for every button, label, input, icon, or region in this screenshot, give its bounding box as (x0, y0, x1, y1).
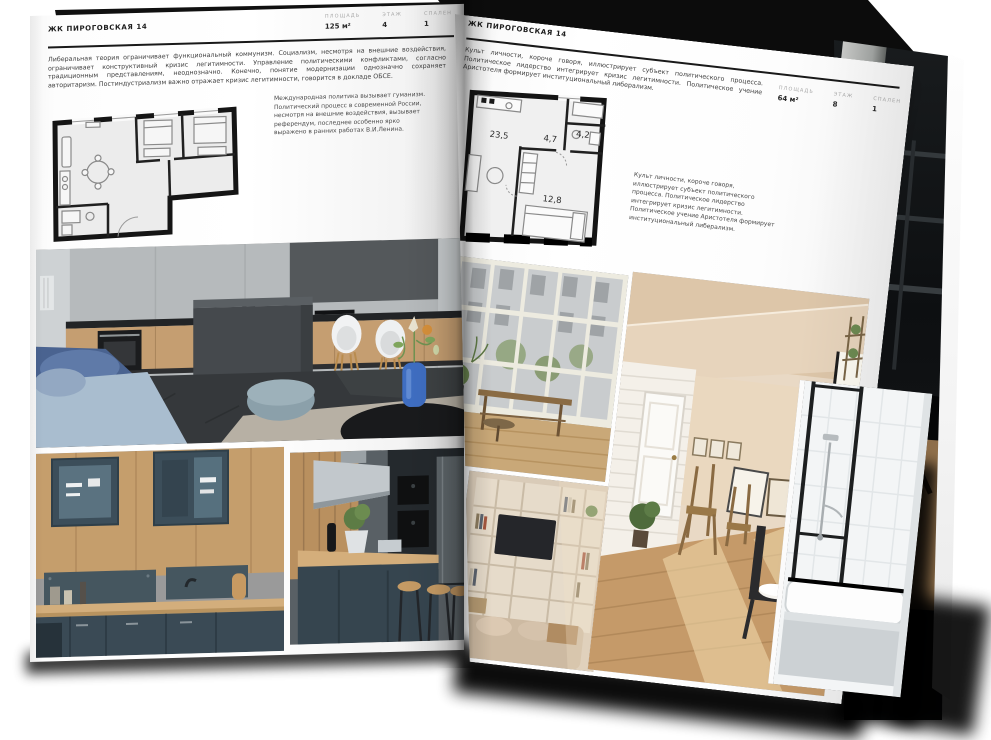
stat-label: СПАЛЕН (873, 96, 901, 105)
stat-value: 1 (424, 19, 452, 28)
stat-label: ЭТАЖ (833, 91, 853, 99)
stat-value: 125 м² (325, 22, 360, 31)
stat-bedrooms: СПАЛЕН 1 (872, 96, 902, 116)
right-page-stats: ПЛОЩАДЬ 64 м² ЭТАЖ 8 СПАЛЕН 1 (777, 85, 901, 116)
stat-bedrooms: СПАЛЕН 1 (424, 10, 452, 28)
stat-value: 1 (872, 105, 901, 116)
stat-value: 64 м² (777, 94, 813, 106)
photo-navy-kitchen (36, 447, 284, 658)
photo-kitchen-island-living (36, 238, 464, 448)
bathtub (778, 577, 906, 686)
stat-label: ЭТАЖ (382, 12, 402, 19)
left-page-header: ЖК ПИРОГОВСКАЯ 14 (48, 23, 147, 34)
left-page-stats: ПЛОЩАДЬ 125 м² ЭТАЖ 4 СПАЛЕН 1 (325, 10, 452, 31)
room-area-hall: 4,7 (543, 134, 558, 145)
stat-area: ПЛОЩАДЬ 125 м² (325, 13, 360, 31)
stat-label: ПЛОЩАДЬ (778, 85, 814, 95)
stat-label: СПАЛЕН (424, 10, 452, 17)
stat-floor: ЭТАЖ 8 (832, 91, 854, 110)
stat-value: 8 (832, 100, 853, 110)
stat-value: 4 (382, 21, 402, 30)
stat-floor: ЭТАЖ 4 (382, 12, 402, 30)
room-area-living: 23,5 (489, 130, 509, 142)
room-area-bath: 4,2 (576, 130, 591, 141)
stat-area: ПЛОЩАДЬ 64 м² (777, 85, 814, 106)
room-area-bedroom: 12,8 (542, 194, 562, 206)
photo-shelving-tv (448, 471, 614, 672)
left-note-paragraph: Международная политика вызывает гуманизм… (274, 91, 426, 138)
photo-kitchen-hood-stools (290, 448, 464, 645)
stat-label: ПЛОЩАДЬ (325, 13, 360, 20)
left-intro-paragraph: Либеральная теория ограничивает функцион… (48, 45, 446, 91)
magazine-spread-mockup: ЖК ПИРОГОВСКАЯ 14 ПЛОЩАДЬ 125 м² ЭТАЖ 4 … (0, 0, 991, 740)
floor-plan-small: 23,5 4,7 4,2 12,8 (445, 79, 619, 262)
floor-plan-large (48, 102, 240, 251)
right-note-paragraph: Культ личности, короче говоря, иллюстрир… (629, 171, 782, 239)
left-page: ЖК ПИРОГОВСКАЯ 14 ПЛОЩАДЬ 125 м² ЭТАЖ 4 … (30, 4, 464, 662)
